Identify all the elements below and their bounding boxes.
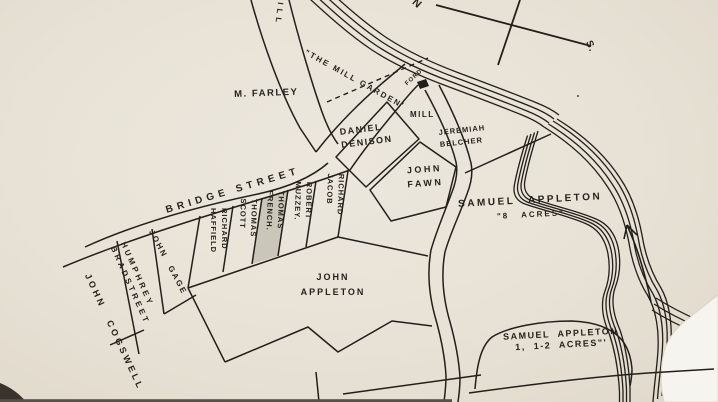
- label-line: JOHN: [288, 270, 378, 285]
- muzzey-lot-label: ROBERT MUZZEY.: [292, 181, 315, 221]
- label-line: RICHARD: [335, 174, 347, 216]
- label-line: MUZZEY.: [292, 181, 304, 220]
- mill-label: MILL: [410, 109, 435, 120]
- french-lot-label: THOMAS FRENCH.: [264, 190, 287, 231]
- label-line: ROBERT: [303, 182, 315, 221]
- photo-edge-artifacts: [0, 95, 579, 402]
- appleton-south-zigzag: [225, 321, 432, 362]
- bridge-street-lower-line: [63, 85, 418, 267]
- label-line: APPLETON: [288, 285, 378, 300]
- belcher-lot-label: JEREMIAH BELCHER: [438, 122, 487, 151]
- haffield-lot-label: RICHARD HAFFIELD: [208, 208, 230, 253]
- label-line: HAFFIELD: [208, 208, 219, 253]
- label-line: RICHARD: [219, 208, 230, 253]
- john-appleton-lot-label: JOHN APPLETON: [288, 270, 378, 300]
- lot-divider: [188, 216, 200, 288]
- historic-plat-map: N S. ILL "THE MILL GARDEN' FORD MILL BRI…: [0, 0, 718, 402]
- label-line: THOMAS: [275, 191, 287, 232]
- gage-bottom-line: [164, 295, 196, 314]
- label-line: FRENCH.: [264, 190, 276, 231]
- lower-field-line: [316, 372, 319, 402]
- label-line: THOMAS: [248, 199, 260, 238]
- jacob-lot-label: RICHARD JACOB: [324, 173, 347, 215]
- scott-lot-label: THOMAS SCOTT: [237, 198, 260, 237]
- compass-cross: [436, 0, 591, 65]
- farley-lot-label: M. FARLEY: [234, 87, 299, 100]
- fawn-lot-label: JOHN FAWN: [398, 160, 452, 192]
- appleton-west-line: [188, 288, 225, 362]
